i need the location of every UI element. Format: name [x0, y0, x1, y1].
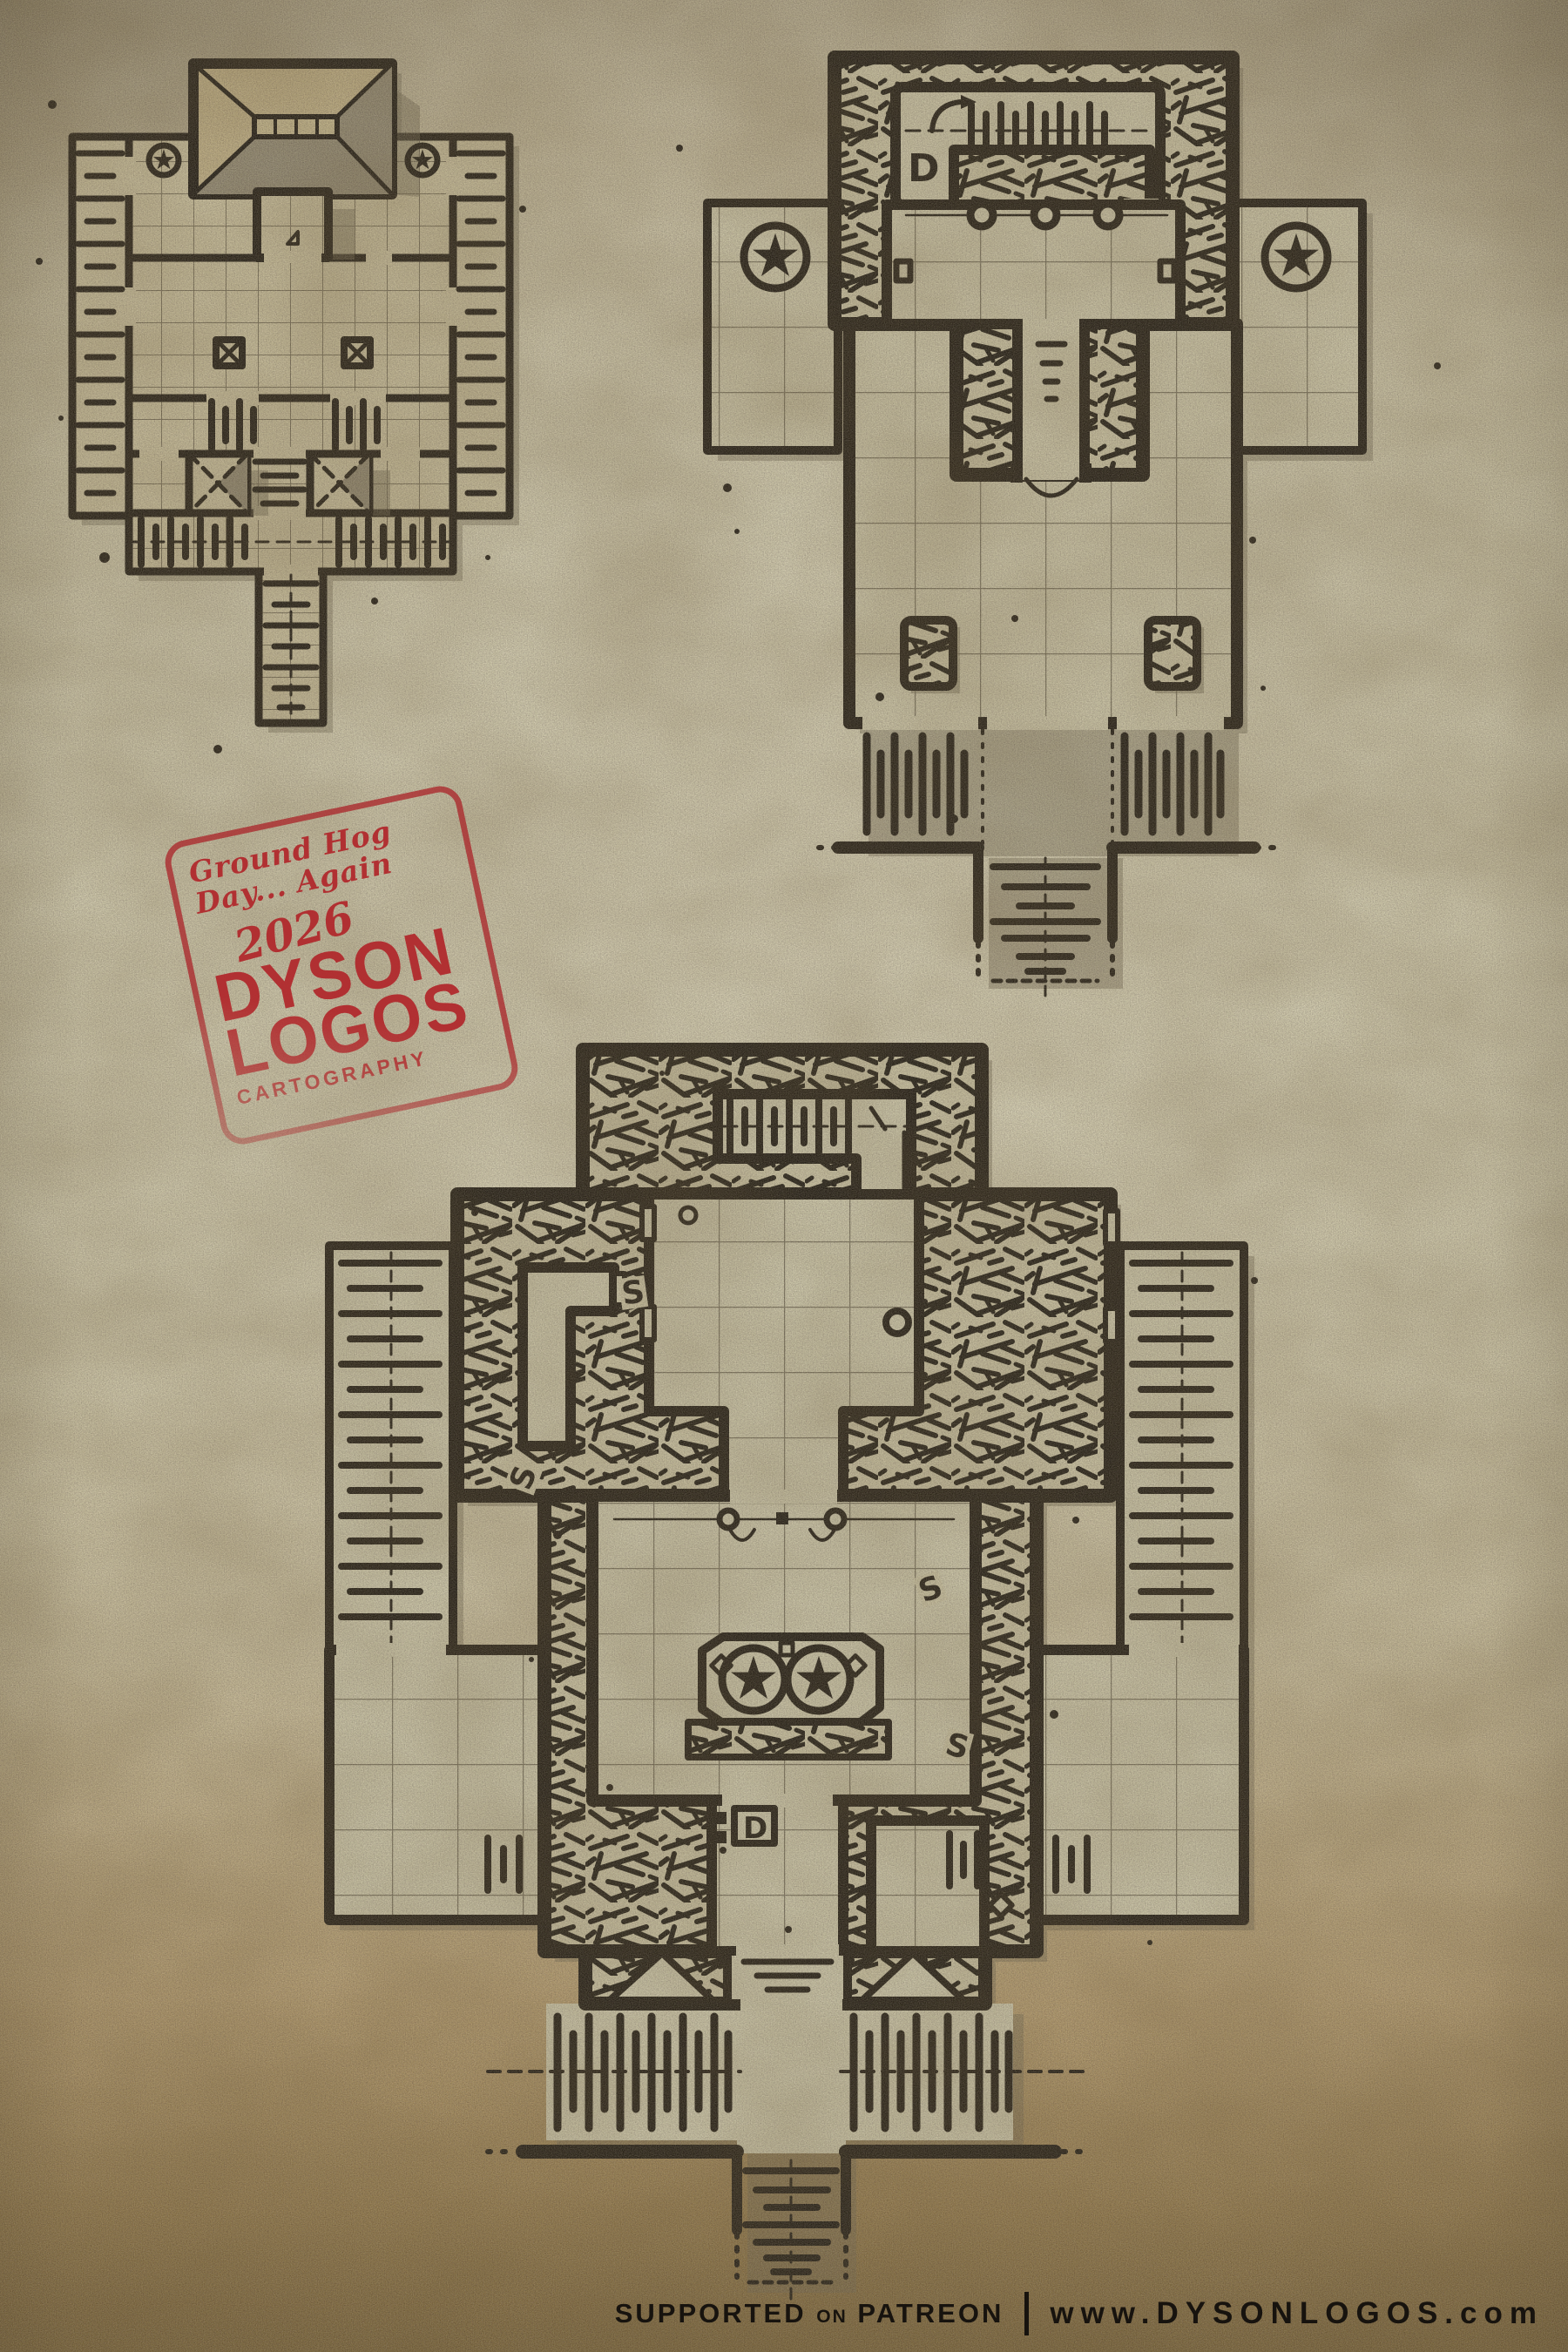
footer-patreon-text: PATREON [857, 2298, 1004, 2328]
footer: SUPPORTED ON PATREON www.DYSONLOGOS.com [615, 2289, 1544, 2338]
dais [688, 1637, 889, 1757]
map-upper-left [36, 64, 526, 754]
website-url: www.DYSONLOGOS.com [1050, 2296, 1544, 2331]
footer-supported-text: SUPPORTED [615, 2298, 807, 2328]
map-lower: U S S [329, 1050, 1258, 2300]
cartographer-stamp: Ground Hog Day... Again 2026 DYSON LOGOS… [161, 782, 522, 1149]
patreon-credit: SUPPORTED ON PATREON [615, 2298, 1004, 2329]
map3-throne-chamber: S S [592, 1490, 976, 1801]
door-label: D [743, 1811, 767, 1846]
map2-nave [887, 204, 1180, 324]
parchment-page: D [0, 0, 1568, 2352]
footer-divider [1024, 2292, 1029, 2335]
map2-stair-room: D [896, 87, 1160, 211]
footer-on-text: ON [816, 2307, 848, 2327]
map2-corridor [1010, 319, 1092, 496]
door-label: D [908, 146, 940, 191]
dungeon-maps-canvas: D [0, 0, 1568, 2352]
map-upper-right: D [676, 57, 1441, 996]
